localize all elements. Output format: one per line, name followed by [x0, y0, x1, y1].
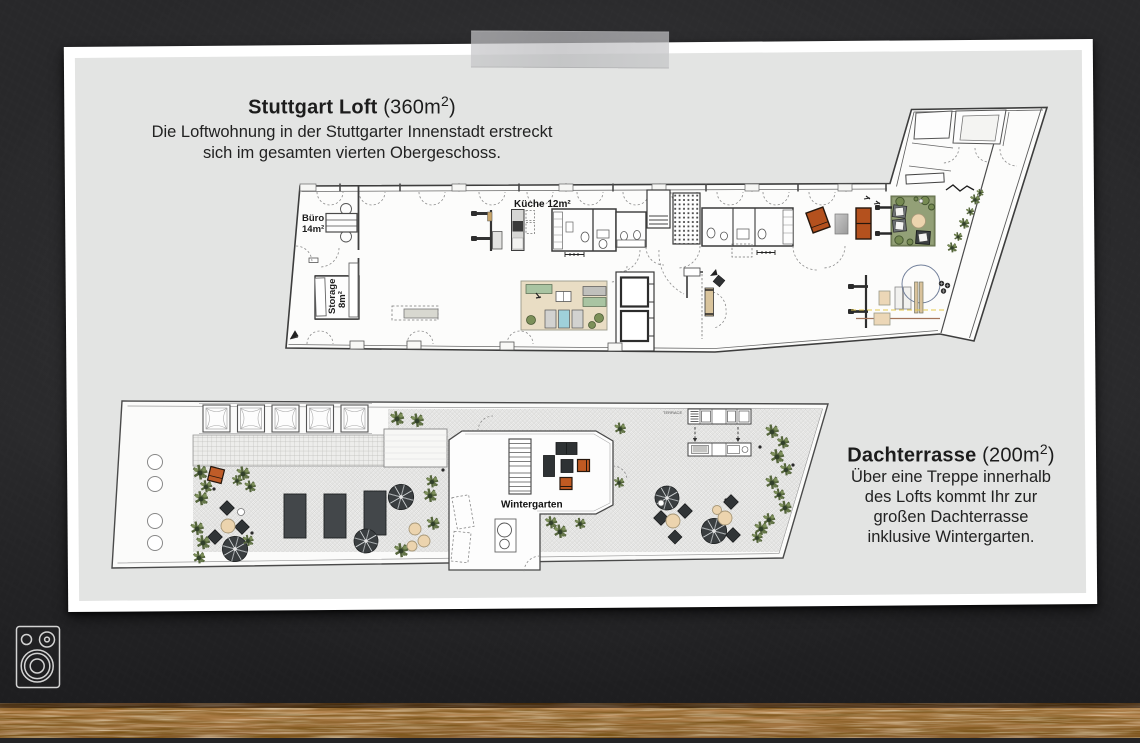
svg-text:Büro: Büro: [302, 213, 324, 224]
svg-text:TERRACE: TERRACE: [663, 410, 682, 415]
svg-text:8m²: 8m²: [337, 291, 348, 308]
svg-text:Wintergarten: Wintergarten: [501, 500, 563, 511]
svg-text:14m²: 14m²: [302, 224, 324, 235]
